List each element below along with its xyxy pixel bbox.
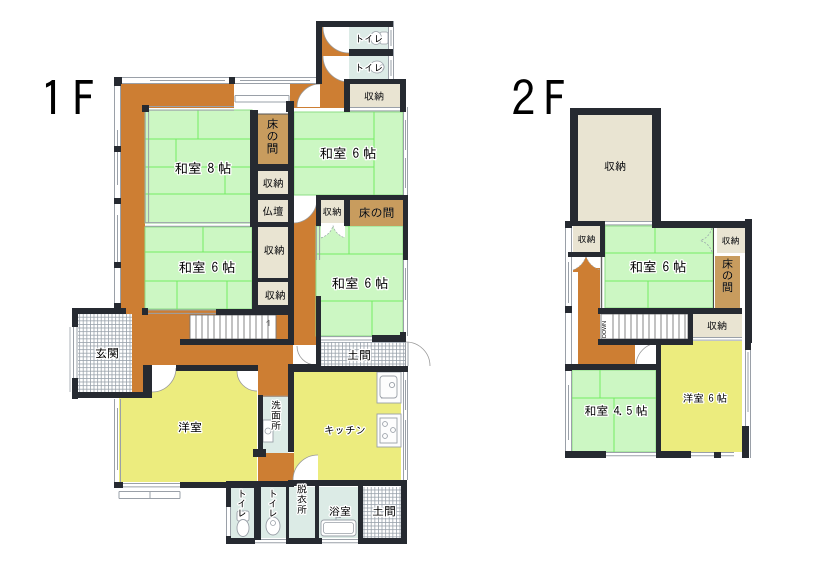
svg-text:DOWN: DOWN	[602, 321, 608, 338]
